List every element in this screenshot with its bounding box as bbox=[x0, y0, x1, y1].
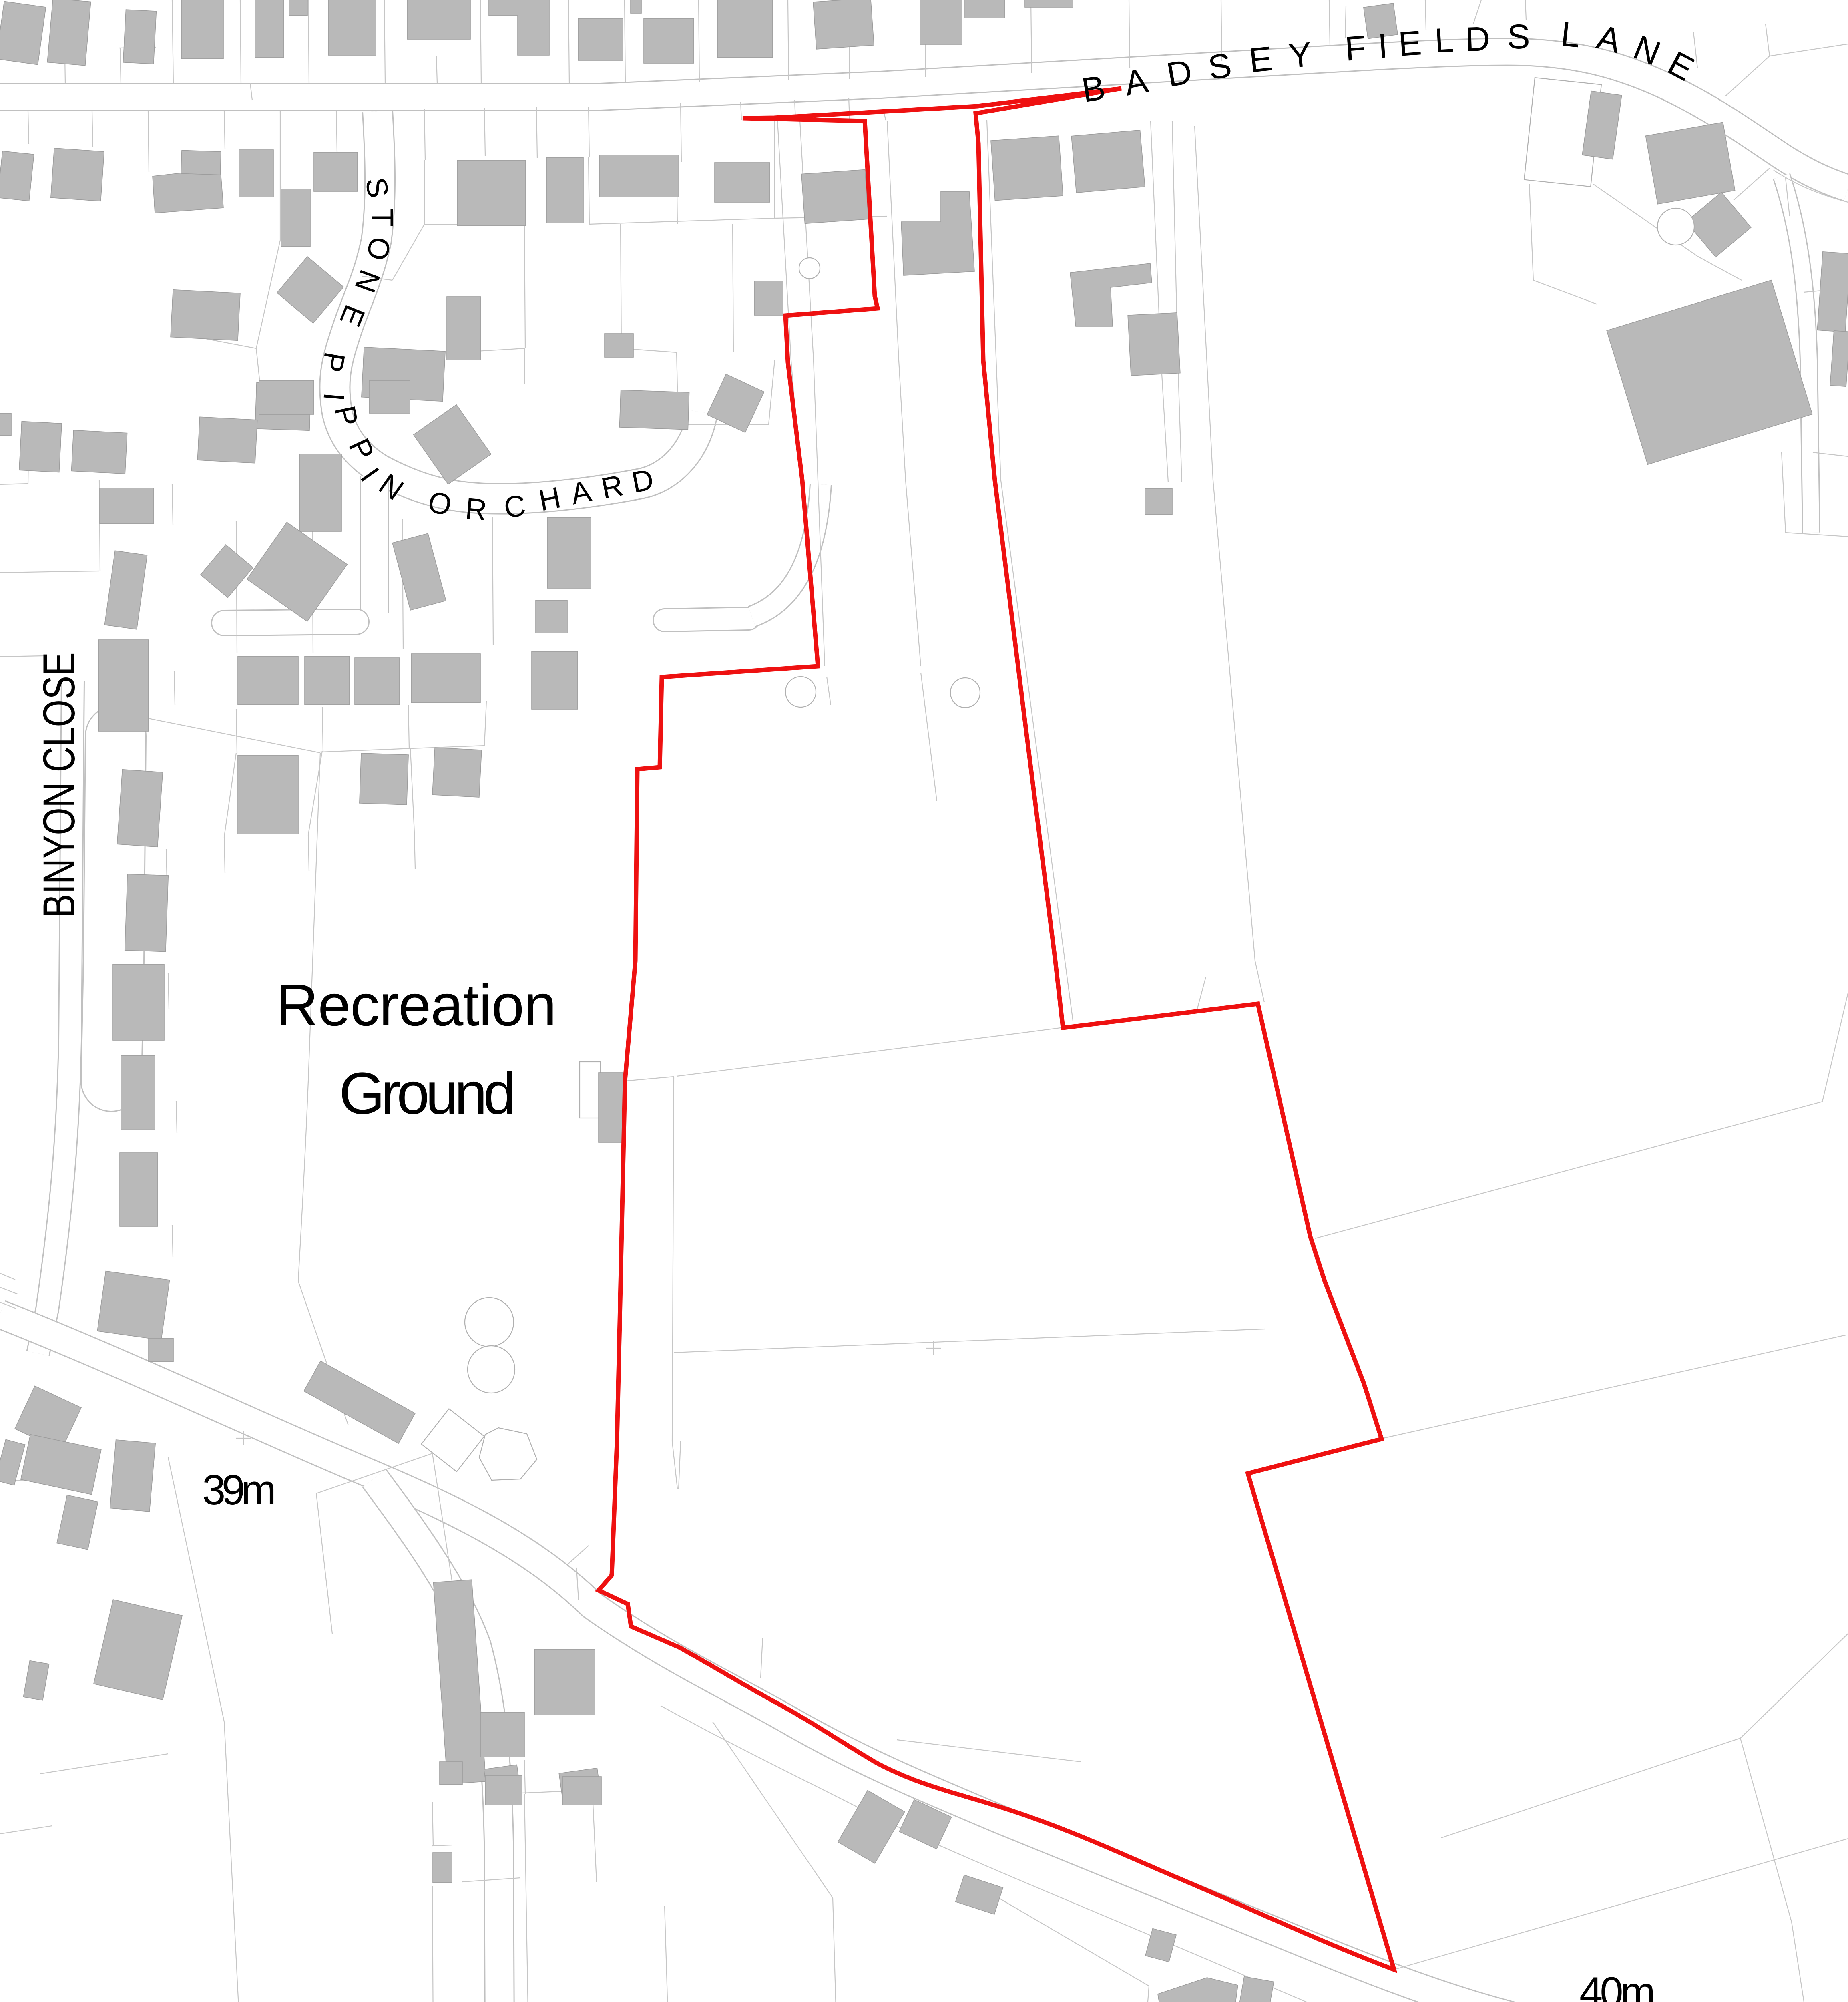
svg-text:F: F bbox=[1344, 28, 1367, 68]
svg-text:Ground: Ground bbox=[339, 1061, 516, 1126]
svg-text:E: E bbox=[1397, 24, 1423, 64]
svg-text:T: T bbox=[366, 209, 399, 227]
svg-text:L: L bbox=[1559, 15, 1582, 55]
svg-text:S: S bbox=[1507, 18, 1530, 56]
svg-text:39m: 39m bbox=[202, 1467, 276, 1514]
svg-text:40m: 40m bbox=[1579, 1969, 1655, 2002]
svg-text:Recreation: Recreation bbox=[276, 973, 556, 1038]
svg-text:R: R bbox=[464, 492, 488, 527]
svg-text:L: L bbox=[1434, 21, 1455, 60]
svg-text:D: D bbox=[1464, 20, 1490, 59]
svg-text:BINYON CLOSE: BINYON CLOSE bbox=[34, 652, 84, 918]
svg-text:C: C bbox=[502, 488, 527, 524]
svg-text:Y: Y bbox=[1287, 35, 1314, 76]
svg-text:E: E bbox=[1247, 39, 1274, 80]
